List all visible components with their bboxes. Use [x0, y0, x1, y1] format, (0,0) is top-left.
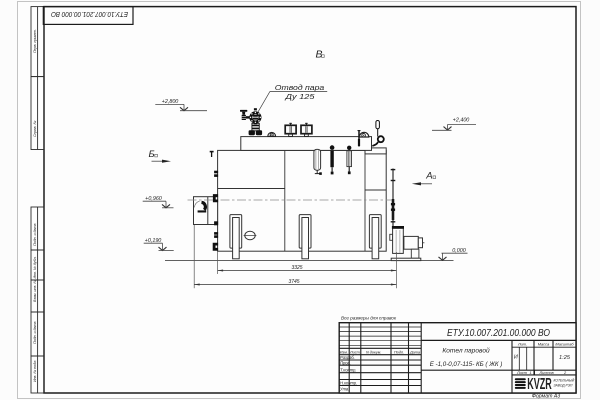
svg-text:1:25: 1:25	[559, 355, 571, 361]
svg-text:Подп. и дата: Подп. и дата	[33, 224, 37, 247]
svg-text:Лист: Лист	[349, 350, 360, 354]
svg-text:Лист: Лист	[516, 370, 528, 375]
svg-text:Листов: Листов	[539, 370, 554, 375]
svg-text:Справ. №: Справ. №	[33, 121, 37, 137]
svg-text:Ду 125: Ду 125	[284, 92, 316, 101]
svg-text:Подп.: Подп.	[394, 350, 404, 354]
svg-text:Масса: Масса	[538, 342, 550, 347]
svg-text:Дата: Дата	[409, 350, 420, 354]
svg-text:ЕТУ.10.007.201.00.000 ВО: ЕТУ.10.007.201.00.000 ВО	[447, 328, 550, 339]
svg-text:Н.контр.: Н.контр.	[340, 381, 357, 386]
svg-text:Инв. № дубл.: Инв. № дубл.	[33, 256, 37, 278]
svg-text:В: В	[316, 48, 323, 60]
svg-text:Формат А3: Формат А3	[532, 393, 560, 399]
svg-text:KVZR: KVZR	[527, 376, 552, 393]
svg-text:N докум.: N докум.	[366, 350, 381, 354]
svg-text:Б: Б	[149, 149, 155, 160]
svg-text:А: А	[425, 170, 432, 181]
svg-text:Масштаб: Масштаб	[555, 342, 574, 347]
svg-text:Т.контр.: Т.контр.	[340, 368, 357, 373]
svg-text:КОТЕЛЬНЫЙ: КОТЕЛЬНЫЙ	[554, 378, 575, 382]
svg-text:Лит.: Лит.	[517, 342, 527, 347]
svg-text:Взам. инв. №: Взам. инв. №	[33, 280, 37, 302]
svg-text:Перв. примен.: Перв. примен.	[33, 29, 37, 53]
svg-text:Подп. и дата: Подп. и дата	[33, 322, 37, 345]
svg-text:Утв.: Утв.	[340, 387, 349, 392]
svg-text:1: 1	[530, 370, 532, 375]
svg-text:Котел паровой: Котел паровой	[442, 346, 490, 354]
svg-text:Пров.: Пров.	[340, 360, 351, 365]
svg-text:Е -1,0-0,07-115- КБ ( ЖК ): Е -1,0-0,07-115- КБ ( ЖК )	[430, 361, 503, 368]
svg-text:Инв. № подл.: Инв. № подл.	[33, 360, 37, 382]
svg-text:ЕТУ.10.007.201.00.000 ВО: ЕТУ.10.007.201.00.000 ВО	[51, 10, 128, 17]
svg-text:ЗАВОД РЭП: ЗАВОД РЭП	[554, 383, 574, 387]
svg-text:3745: 3745	[288, 279, 299, 285]
svg-text:И: И	[514, 354, 518, 360]
svg-text:Все размеры для справок: Все размеры для справок	[341, 315, 397, 320]
svg-text:+2,400: +2,400	[453, 118, 470, 124]
svg-text:Изм.: Изм.	[340, 350, 348, 354]
svg-text:Отвод пара: Отвод пара	[275, 83, 325, 92]
svg-text:3325: 3325	[291, 265, 302, 271]
